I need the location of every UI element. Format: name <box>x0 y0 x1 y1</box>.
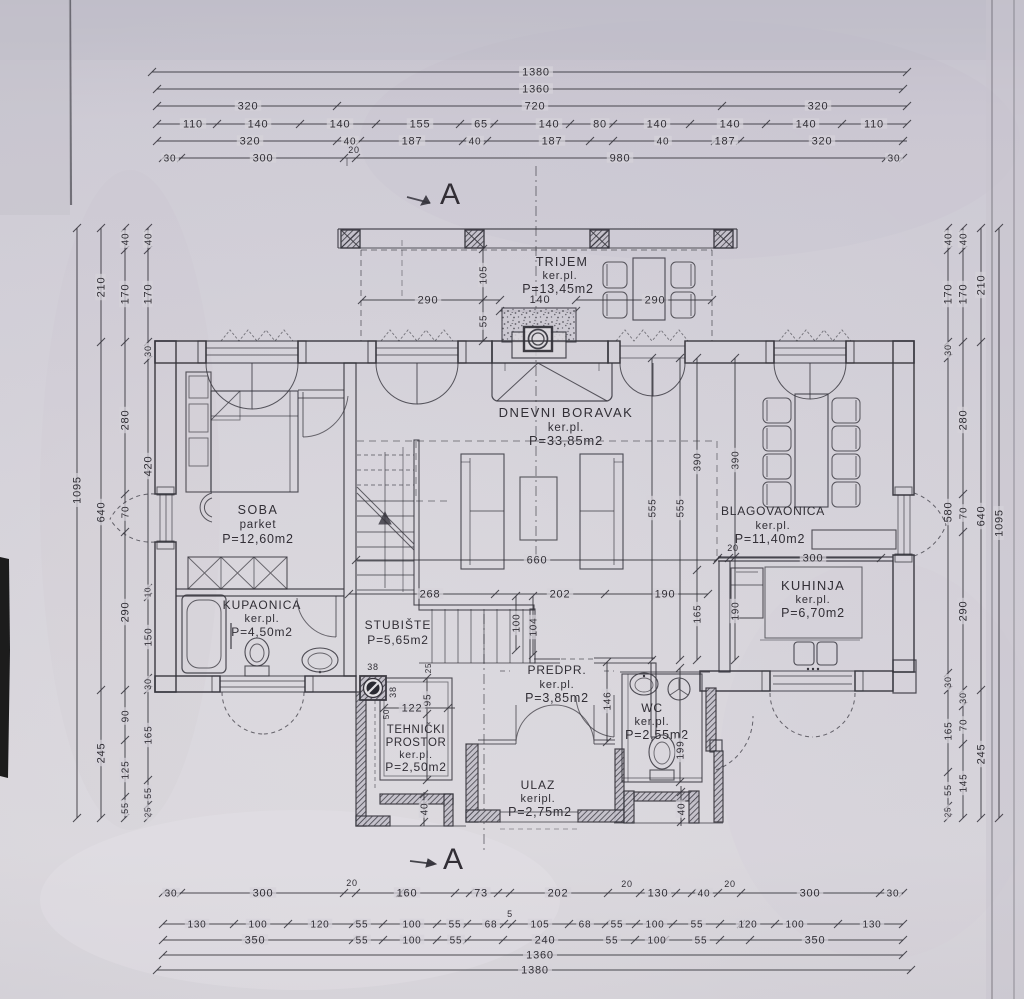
svg-text:40: 40 <box>676 803 687 816</box>
svg-text:55: 55 <box>943 784 953 796</box>
svg-text:PROSTOR: PROSTOR <box>386 737 447 749</box>
svg-text:390: 390 <box>730 450 741 469</box>
svg-text:40: 40 <box>657 136 670 147</box>
svg-text:P=3,85m2: P=3,85m2 <box>525 691 589 705</box>
svg-text:170: 170 <box>943 284 955 305</box>
svg-text:350: 350 <box>245 935 266 947</box>
svg-text:320: 320 <box>808 101 829 113</box>
svg-text:140: 140 <box>647 119 668 131</box>
svg-text:68: 68 <box>579 919 592 930</box>
svg-text:55: 55 <box>478 315 489 328</box>
svg-text:640: 640 <box>96 502 108 523</box>
svg-text:20: 20 <box>346 878 358 888</box>
svg-text:TRIJEM: TRIJEM <box>536 255 588 269</box>
svg-text:100: 100 <box>647 935 666 946</box>
svg-text:55: 55 <box>691 919 704 930</box>
svg-text:120: 120 <box>738 919 757 930</box>
svg-text:187: 187 <box>542 136 563 148</box>
svg-text:165: 165 <box>143 725 154 744</box>
svg-text:100: 100 <box>402 919 421 930</box>
svg-text:70: 70 <box>958 507 969 520</box>
svg-text:1360: 1360 <box>526 950 554 962</box>
svg-text:20: 20 <box>727 543 739 553</box>
svg-text:165: 165 <box>692 604 703 623</box>
svg-text:PREDPR.: PREDPR. <box>528 663 587 677</box>
svg-text:73: 73 <box>474 888 488 900</box>
svg-text:110: 110 <box>183 119 203 131</box>
svg-text:55: 55 <box>695 935 708 946</box>
svg-text:160: 160 <box>397 888 418 900</box>
svg-text:55: 55 <box>120 802 130 814</box>
svg-text:55: 55 <box>143 787 153 799</box>
svg-text:20: 20 <box>724 879 736 889</box>
svg-text:202: 202 <box>550 589 571 601</box>
svg-text:300: 300 <box>253 153 274 165</box>
svg-text:202: 202 <box>548 888 569 900</box>
svg-text:30: 30 <box>143 678 153 690</box>
svg-text:ULAZ: ULAZ <box>521 778 556 792</box>
svg-text:25: 25 <box>144 807 153 818</box>
svg-text:350: 350 <box>805 935 826 947</box>
svg-text:P=2,75m2: P=2,75m2 <box>508 805 572 819</box>
svg-text:140: 140 <box>530 294 551 306</box>
svg-text:ker.pl.: ker.pl. <box>540 679 575 691</box>
svg-text:420: 420 <box>143 456 155 477</box>
svg-text:105: 105 <box>478 265 489 284</box>
svg-text:100: 100 <box>511 613 522 632</box>
svg-text:BLAGOVAONICA: BLAGOVAONICA <box>721 504 825 518</box>
svg-text:ker.pl.: ker.pl. <box>796 594 831 606</box>
svg-text:140: 140 <box>248 119 269 131</box>
svg-text:104: 104 <box>528 617 539 636</box>
svg-text:WC: WC <box>641 701 663 715</box>
svg-text:55: 55 <box>356 919 369 930</box>
svg-text:140: 140 <box>539 119 560 131</box>
svg-text:55: 55 <box>611 919 624 930</box>
svg-text:50: 50 <box>382 709 391 720</box>
svg-text:70: 70 <box>120 506 131 519</box>
svg-text:A: A <box>440 178 460 211</box>
svg-text:140: 140 <box>796 119 817 131</box>
svg-text:290: 290 <box>958 601 970 622</box>
svg-text:720: 720 <box>525 101 546 113</box>
svg-text:190: 190 <box>730 601 741 620</box>
svg-text:ker.pl.: ker.pl. <box>245 613 280 625</box>
svg-text:1095: 1095 <box>72 476 84 504</box>
svg-text:40: 40 <box>143 233 154 246</box>
svg-text:660: 660 <box>527 555 548 567</box>
svg-text:20: 20 <box>348 145 360 155</box>
svg-text:140: 140 <box>330 119 351 131</box>
svg-text:980: 980 <box>610 153 631 165</box>
svg-text:20: 20 <box>621 879 633 889</box>
svg-text:105: 105 <box>530 919 549 930</box>
svg-text:130: 130 <box>648 888 669 900</box>
svg-text:40: 40 <box>698 888 711 899</box>
svg-text:30: 30 <box>143 345 153 357</box>
svg-text:68: 68 <box>485 919 498 930</box>
svg-text:P=6,70m2: P=6,70m2 <box>781 606 845 620</box>
svg-text:390: 390 <box>692 452 703 471</box>
svg-text:170: 170 <box>143 284 155 305</box>
svg-text:P=4,50m2: P=4,50m2 <box>231 625 292 639</box>
svg-text:30: 30 <box>943 344 953 356</box>
svg-text:210: 210 <box>976 275 988 296</box>
svg-text:245: 245 <box>976 744 988 765</box>
svg-text:130: 130 <box>187 919 206 930</box>
svg-text:55: 55 <box>450 935 463 946</box>
svg-text:ker.pl.: ker.pl. <box>543 270 578 282</box>
svg-text:320: 320 <box>812 136 833 148</box>
svg-text:5: 5 <box>507 909 513 919</box>
svg-text:555: 555 <box>647 498 658 517</box>
svg-text:30: 30 <box>943 676 953 688</box>
svg-text:30: 30 <box>888 153 901 164</box>
svg-text:1360: 1360 <box>522 84 550 96</box>
svg-text:125: 125 <box>120 760 131 779</box>
svg-text:STUBIŠTE: STUBIŠTE <box>365 617 432 632</box>
svg-text:100: 100 <box>402 935 421 946</box>
svg-text:170: 170 <box>958 284 970 305</box>
svg-text:80: 80 <box>593 119 607 131</box>
svg-text:110: 110 <box>864 119 884 131</box>
svg-text:120: 120 <box>310 919 329 930</box>
svg-text:38: 38 <box>388 686 398 698</box>
svg-text:1380: 1380 <box>522 67 550 79</box>
svg-text:100: 100 <box>248 919 267 930</box>
svg-text:640: 640 <box>976 506 988 527</box>
svg-text:65: 65 <box>474 119 488 131</box>
svg-text:190: 190 <box>655 589 676 601</box>
svg-text:1095: 1095 <box>994 509 1006 537</box>
svg-text:ker.pl.: ker.pl. <box>756 520 791 532</box>
svg-text:P=33,85m2: P=33,85m2 <box>529 433 603 448</box>
svg-text:40: 40 <box>120 233 131 246</box>
svg-text:25: 25 <box>424 663 433 674</box>
svg-text:290: 290 <box>645 295 666 307</box>
svg-text:40: 40 <box>419 803 430 816</box>
svg-text:P=12,60m2: P=12,60m2 <box>222 532 293 546</box>
svg-text:290: 290 <box>120 602 132 623</box>
svg-text:38: 38 <box>367 662 379 672</box>
svg-text:10: 10 <box>144 587 153 598</box>
svg-text:70: 70 <box>958 719 969 732</box>
svg-text:ker.pl.: ker.pl. <box>635 716 670 728</box>
svg-text:290: 290 <box>418 295 439 307</box>
svg-text:55: 55 <box>449 919 462 930</box>
svg-text:130: 130 <box>862 919 881 930</box>
svg-text:P=2,50m2: P=2,50m2 <box>385 760 446 774</box>
svg-text:145: 145 <box>958 773 969 792</box>
svg-text:140: 140 <box>720 119 741 131</box>
svg-text:555: 555 <box>675 498 686 517</box>
svg-text:100: 100 <box>645 919 664 930</box>
svg-text:165: 165 <box>943 721 954 740</box>
svg-text:300: 300 <box>253 888 274 900</box>
svg-text:240: 240 <box>535 935 556 947</box>
svg-text:55: 55 <box>356 935 369 946</box>
svg-text:P=5,65m2: P=5,65m2 <box>367 633 428 647</box>
svg-text:A: A <box>443 843 463 876</box>
svg-text:155: 155 <box>410 119 431 131</box>
svg-text:187: 187 <box>715 136 736 148</box>
svg-text:keripl.: keripl. <box>521 793 556 805</box>
svg-text:187: 187 <box>402 136 423 148</box>
svg-text:30: 30 <box>164 153 177 164</box>
svg-text:40: 40 <box>958 233 969 246</box>
svg-text:122: 122 <box>402 703 423 715</box>
svg-text:210: 210 <box>96 277 108 298</box>
svg-text:268: 268 <box>420 589 441 601</box>
svg-text:30: 30 <box>165 888 178 899</box>
svg-text:SOBA: SOBA <box>238 503 279 517</box>
svg-text:25: 25 <box>944 807 953 818</box>
svg-text:245: 245 <box>96 743 108 764</box>
svg-text:TEHNIČKI: TEHNIČKI <box>387 723 445 736</box>
svg-text:100: 100 <box>785 919 804 930</box>
svg-text:580: 580 <box>943 502 955 523</box>
svg-text:KUHINJA: KUHINJA <box>781 578 845 593</box>
svg-text:280: 280 <box>958 410 970 431</box>
svg-text:300: 300 <box>803 553 824 565</box>
svg-text:90: 90 <box>120 710 131 723</box>
svg-text:280: 280 <box>120 410 132 431</box>
svg-text:30: 30 <box>887 888 900 899</box>
svg-text:DNEVNI BORAVAK: DNEVNI BORAVAK <box>499 405 634 420</box>
svg-text:146: 146 <box>602 691 613 710</box>
svg-text:1380: 1380 <box>521 965 549 977</box>
svg-text:150: 150 <box>143 627 154 646</box>
svg-text:40: 40 <box>943 233 954 246</box>
svg-text:320: 320 <box>240 136 261 148</box>
svg-text:55: 55 <box>606 935 619 946</box>
svg-text:30: 30 <box>958 692 968 704</box>
svg-text:KUPAONICA: KUPAONICA <box>223 598 302 612</box>
svg-text:P=11,40m2: P=11,40m2 <box>735 532 806 546</box>
svg-text:320: 320 <box>238 101 259 113</box>
svg-text:40: 40 <box>469 136 482 147</box>
svg-text:300: 300 <box>800 888 821 900</box>
svg-text:parket: parket <box>240 519 277 531</box>
svg-text:170: 170 <box>120 284 132 305</box>
svg-text:199: 199 <box>675 740 686 759</box>
